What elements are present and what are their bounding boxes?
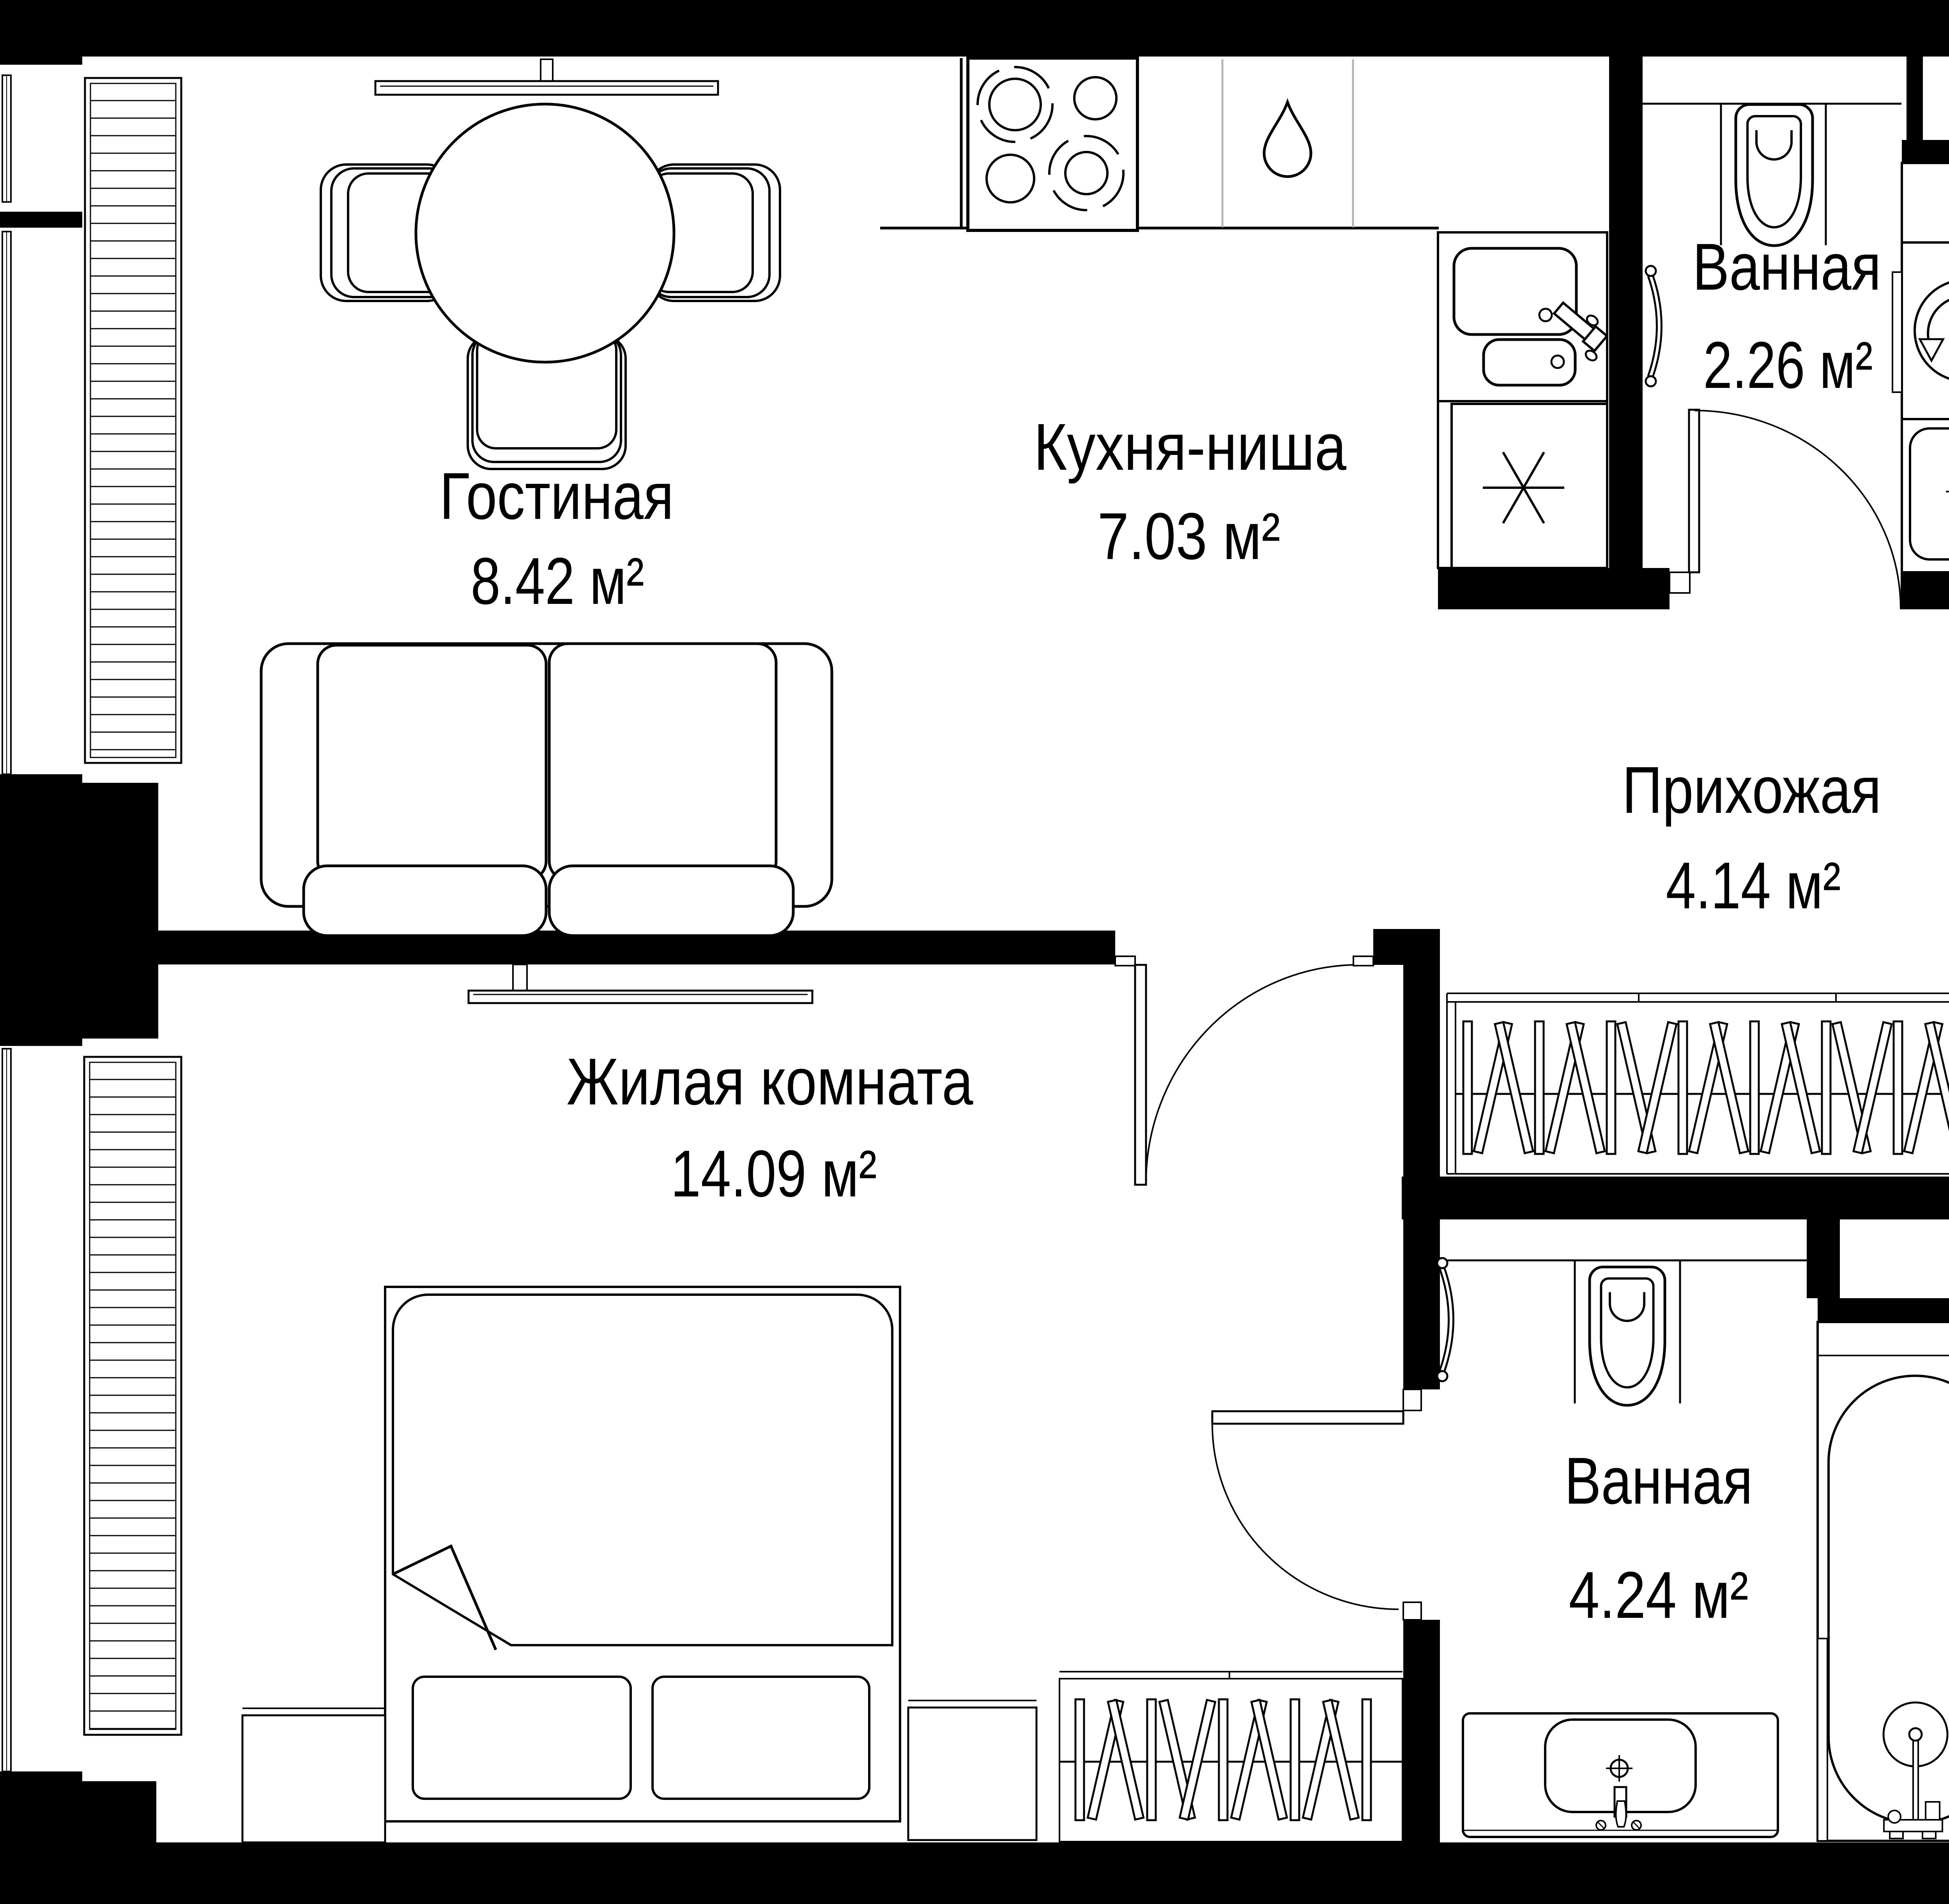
svg-text:2.26 м²: 2.26 м² — [1703, 328, 1873, 402]
svg-text:Гостиная: Гостиная — [440, 459, 674, 533]
svg-text:Прихожая: Прихожая — [1622, 753, 1882, 827]
svg-text:Жилая комната: Жилая комната — [567, 1045, 973, 1119]
svg-text:14.09 м²: 14.09 м² — [671, 1137, 877, 1211]
svg-text:8.42 м²: 8.42 м² — [471, 544, 644, 618]
svg-text:Кухня-ниша: Кухня-ниша — [1034, 410, 1346, 484]
svg-text:4.24 м²: 4.24 м² — [1569, 1558, 1749, 1632]
svg-text:7.03 м²: 7.03 м² — [1098, 499, 1280, 573]
svg-text:Ванная: Ванная — [1693, 230, 1881, 304]
svg-text:4.14 м²: 4.14 м² — [1666, 849, 1841, 923]
svg-text:Ванная: Ванная — [1565, 1444, 1753, 1518]
